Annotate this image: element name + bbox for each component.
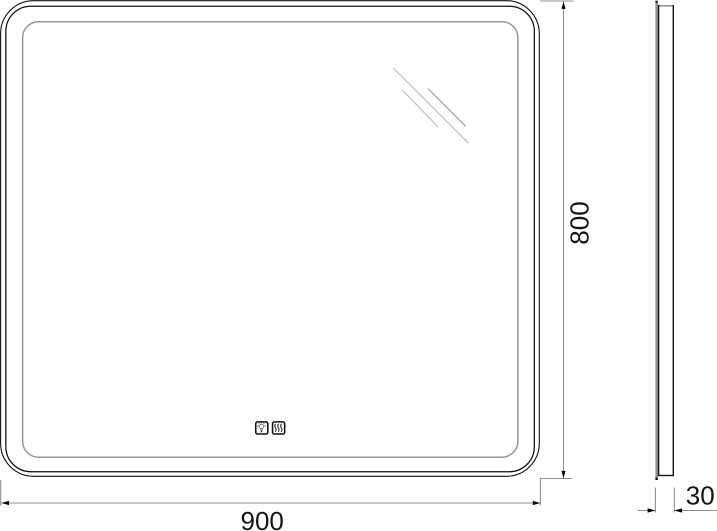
svg-text:800: 800	[565, 201, 595, 244]
svg-text:30: 30	[686, 480, 715, 510]
svg-text:900: 900	[241, 506, 284, 531]
